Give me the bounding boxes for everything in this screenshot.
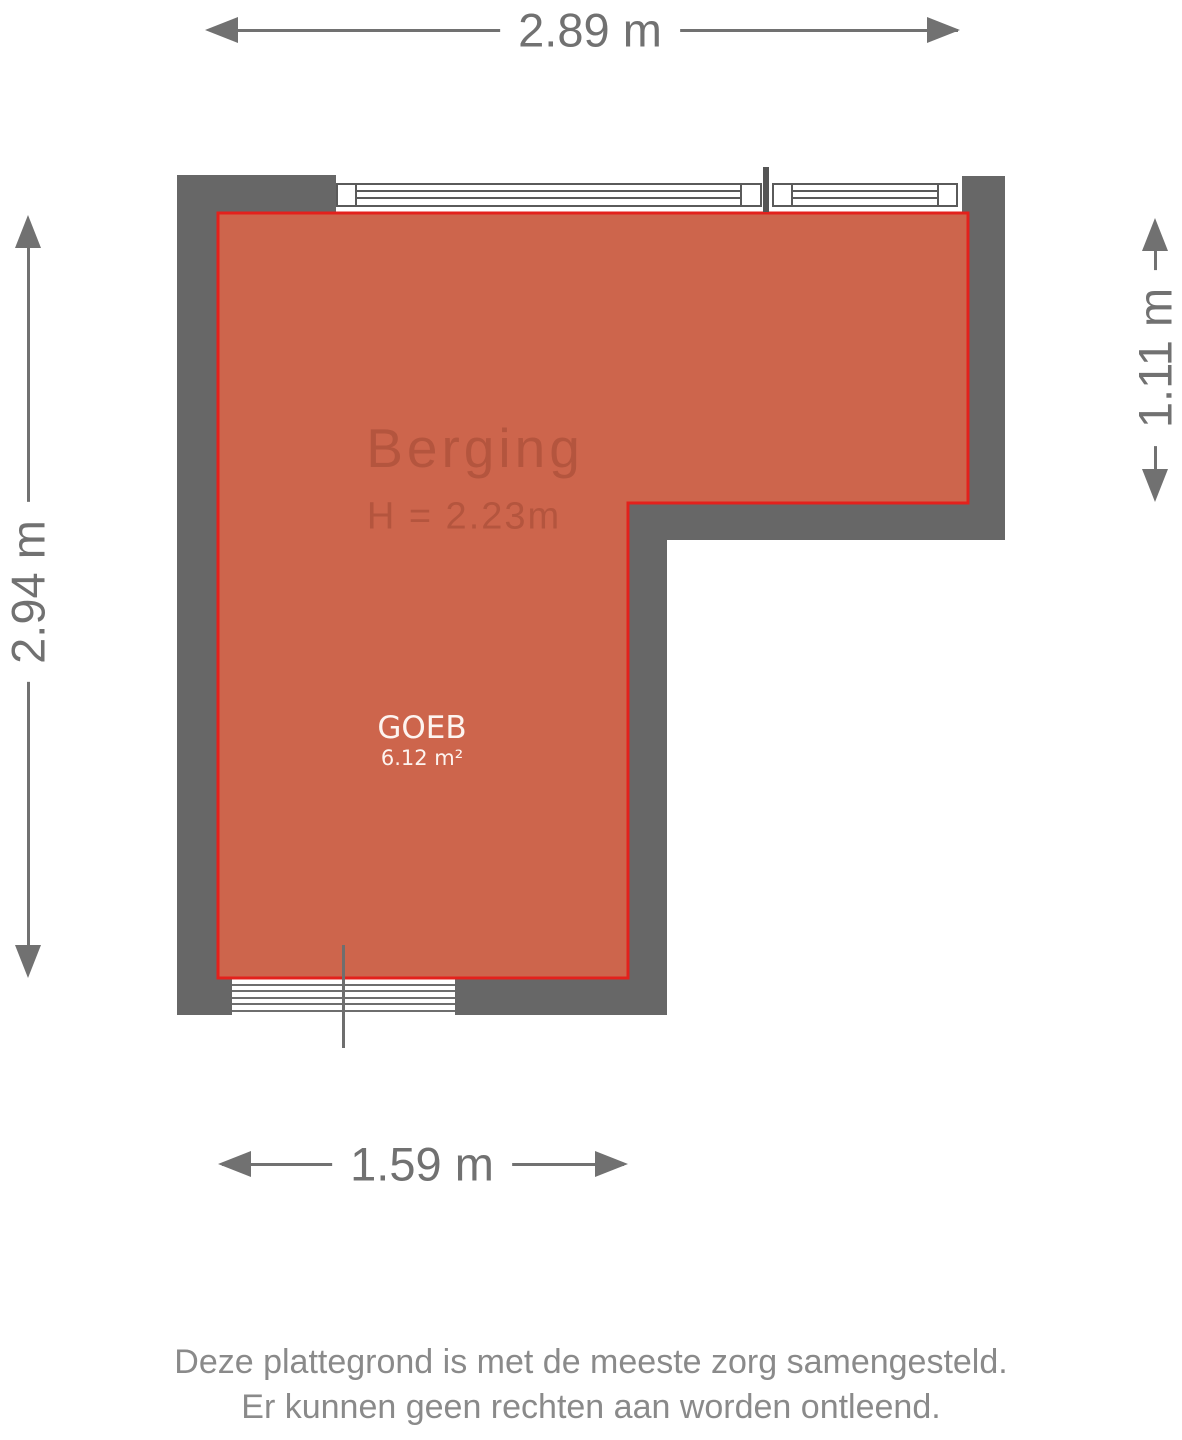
wall-bottom-left <box>177 978 232 1015</box>
window-2-post-right <box>937 183 939 207</box>
window-2-frame-left <box>772 183 774 207</box>
room-height-label: H = 2.23m <box>367 496 561 539</box>
wall-bottom-right <box>455 978 667 1015</box>
top-dimension-arrow-left-icon <box>205 17 238 43</box>
window-1-post-right <box>740 183 742 207</box>
window-1-frame-top <box>336 183 762 185</box>
wall-left <box>177 175 218 1015</box>
window-2-frame-bottom <box>772 205 958 207</box>
dimension-label-right: 1.11 m <box>1128 270 1182 446</box>
wall-inner-vertical <box>628 503 667 1015</box>
window-2-frame-right <box>956 183 958 207</box>
dimension-label-bottom: 1.59 m <box>332 1137 512 1192</box>
window-2-background <box>772 183 958 207</box>
window-1-background <box>336 183 762 207</box>
wall-inner-horizontal <box>628 503 1005 540</box>
window-1-glass-line-2 <box>356 197 741 199</box>
room-code-label: GOEB <box>377 710 466 746</box>
left-dimension-arrow-down-icon <box>15 945 41 978</box>
room-area-label: 6.12 m² <box>381 746 463 770</box>
room-area-group <box>218 213 968 978</box>
room-name-label: Berging <box>366 416 584 480</box>
window-1-frame-left <box>336 183 338 207</box>
window-top <box>336 167 958 212</box>
window-1-frame-right <box>760 183 762 207</box>
disclaimer-line-1: Deze plattegrond is met de meeste zorg s… <box>0 1340 1182 1385</box>
disclaimer-line-2: Er kunnen geen rechten aan worden ontlee… <box>0 1385 1182 1430</box>
left-dimension-arrow-up-icon <box>15 215 41 248</box>
window-1-post-left <box>355 183 357 207</box>
disclaimer: Deze plattegrond is met de meeste zorg s… <box>0 1340 1182 1430</box>
floorplan-canvas: 2.89 m 2.94 m 1.11 m 1.59 m Berging H = … <box>0 0 1182 1440</box>
right-dimension-arrow-down-icon <box>1142 469 1168 502</box>
bottom-dimension-arrow-left-icon <box>218 1151 251 1177</box>
floorplan-drawing <box>0 0 1182 1440</box>
right-dimension-arrow-up-icon <box>1142 218 1168 251</box>
door-divider-line <box>342 945 345 1048</box>
window-2-post-left <box>791 183 793 207</box>
window-2-glass-line-1 <box>793 190 937 192</box>
window-1-frame-bottom <box>336 205 762 207</box>
dimension-label-left: 2.94 m <box>1 502 56 682</box>
wall-top-left <box>177 175 336 213</box>
window-1-glass-line-1 <box>356 190 741 192</box>
room-area <box>218 213 968 978</box>
bottom-dimension-arrow-right-icon <box>595 1151 628 1177</box>
window-mullion <box>763 167 769 212</box>
window-2-glass-line-2 <box>793 197 937 199</box>
top-dimension-arrow-right-icon <box>927 17 960 43</box>
dimension-label-top: 2.89 m <box>500 3 680 58</box>
window-2-frame-top <box>772 183 958 185</box>
